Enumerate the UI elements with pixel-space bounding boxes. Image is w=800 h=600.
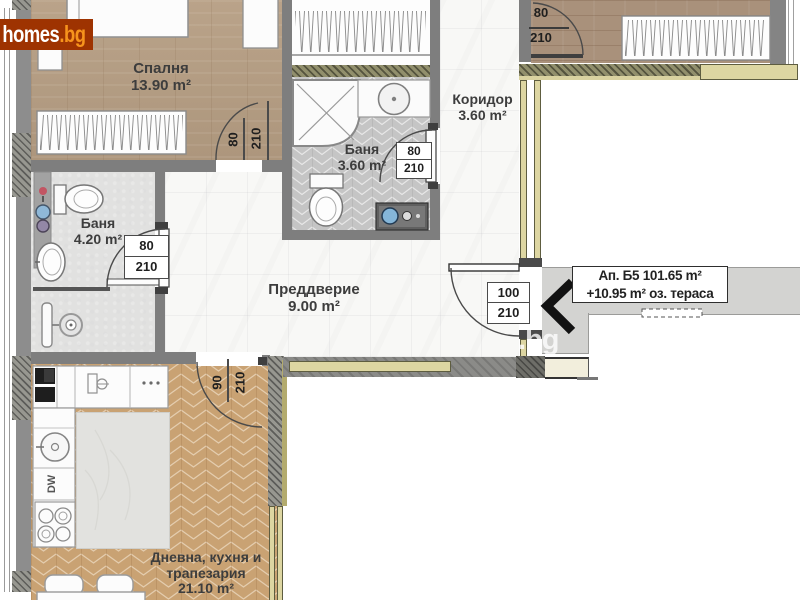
svg-text:DW: DW (46, 474, 58, 493)
